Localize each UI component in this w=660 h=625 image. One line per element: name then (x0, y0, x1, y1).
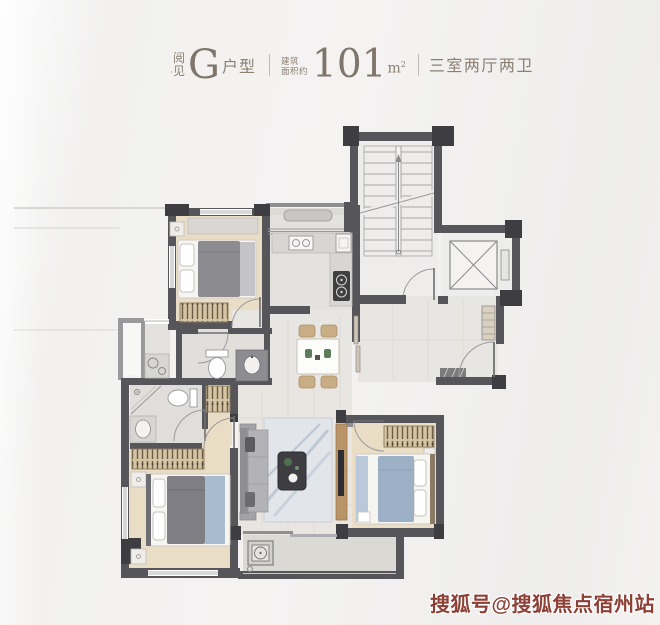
vanity-icon (236, 350, 268, 381)
pillow-icon (414, 460, 426, 486)
shoe-cabinet-icon (482, 306, 495, 340)
sink-icon (289, 236, 313, 250)
pillow-icon (414, 490, 426, 516)
plate-icon (324, 349, 331, 358)
coffee-table-icon (278, 452, 306, 490)
master-vanity-icon (130, 416, 156, 442)
chair-icon (321, 376, 337, 388)
laundry-nook (145, 354, 169, 378)
master-bed-icon (146, 474, 230, 546)
kitchen-sliding-door (354, 316, 358, 344)
stool-icon (358, 512, 370, 522)
master-wardrobe-icon (132, 449, 204, 469)
stove-icon (333, 271, 350, 301)
ac-platform-floor (123, 323, 143, 375)
planter-icon (284, 210, 332, 221)
floorplan-drawing (0, 0, 660, 625)
floorplan-page: { "header": { "brand": { "line1": "阅", "… (0, 0, 660, 625)
chair-icon (321, 325, 337, 337)
master-toilet-icon (168, 389, 197, 407)
sofa-icon (240, 424, 268, 520)
laundry-window (145, 319, 169, 324)
throw-pillow-icon (245, 437, 255, 452)
pillow-icon (180, 244, 194, 266)
fridge-icon (336, 234, 351, 252)
chair-icon (299, 325, 315, 337)
master-left-window (122, 487, 128, 539)
ac-unit-icon (248, 541, 273, 565)
tv-icon (338, 450, 344, 496)
throw-pillow-icon (245, 492, 255, 507)
chair-icon (299, 376, 315, 388)
watermark: 搜狐号@搜狐焦点宿州站 (430, 588, 655, 617)
pillow-icon (180, 270, 194, 292)
bed-icon (178, 240, 256, 298)
pillow-icon (153, 479, 165, 507)
kitchen-sliding-door-2 (356, 346, 360, 372)
nightstand-icon (170, 222, 184, 236)
wardrobe-icon (384, 426, 434, 447)
nightstand-icon (131, 472, 146, 487)
pillow-icon (153, 512, 165, 540)
wardrobe-icon (180, 303, 228, 322)
vase-icon (315, 355, 320, 360)
living-room (240, 418, 347, 522)
dresser-icon (188, 218, 258, 234)
entry-cabinet-icon (440, 368, 466, 377)
master-bottom-window (148, 570, 218, 576)
bedroom2-top-window (200, 209, 252, 215)
bedroom2-left-window (169, 246, 175, 288)
entry-closet-icon (206, 386, 230, 412)
neighbor-unit-lines (14, 208, 167, 330)
plate-icon (305, 349, 312, 358)
nightstand-icon (131, 549, 146, 564)
